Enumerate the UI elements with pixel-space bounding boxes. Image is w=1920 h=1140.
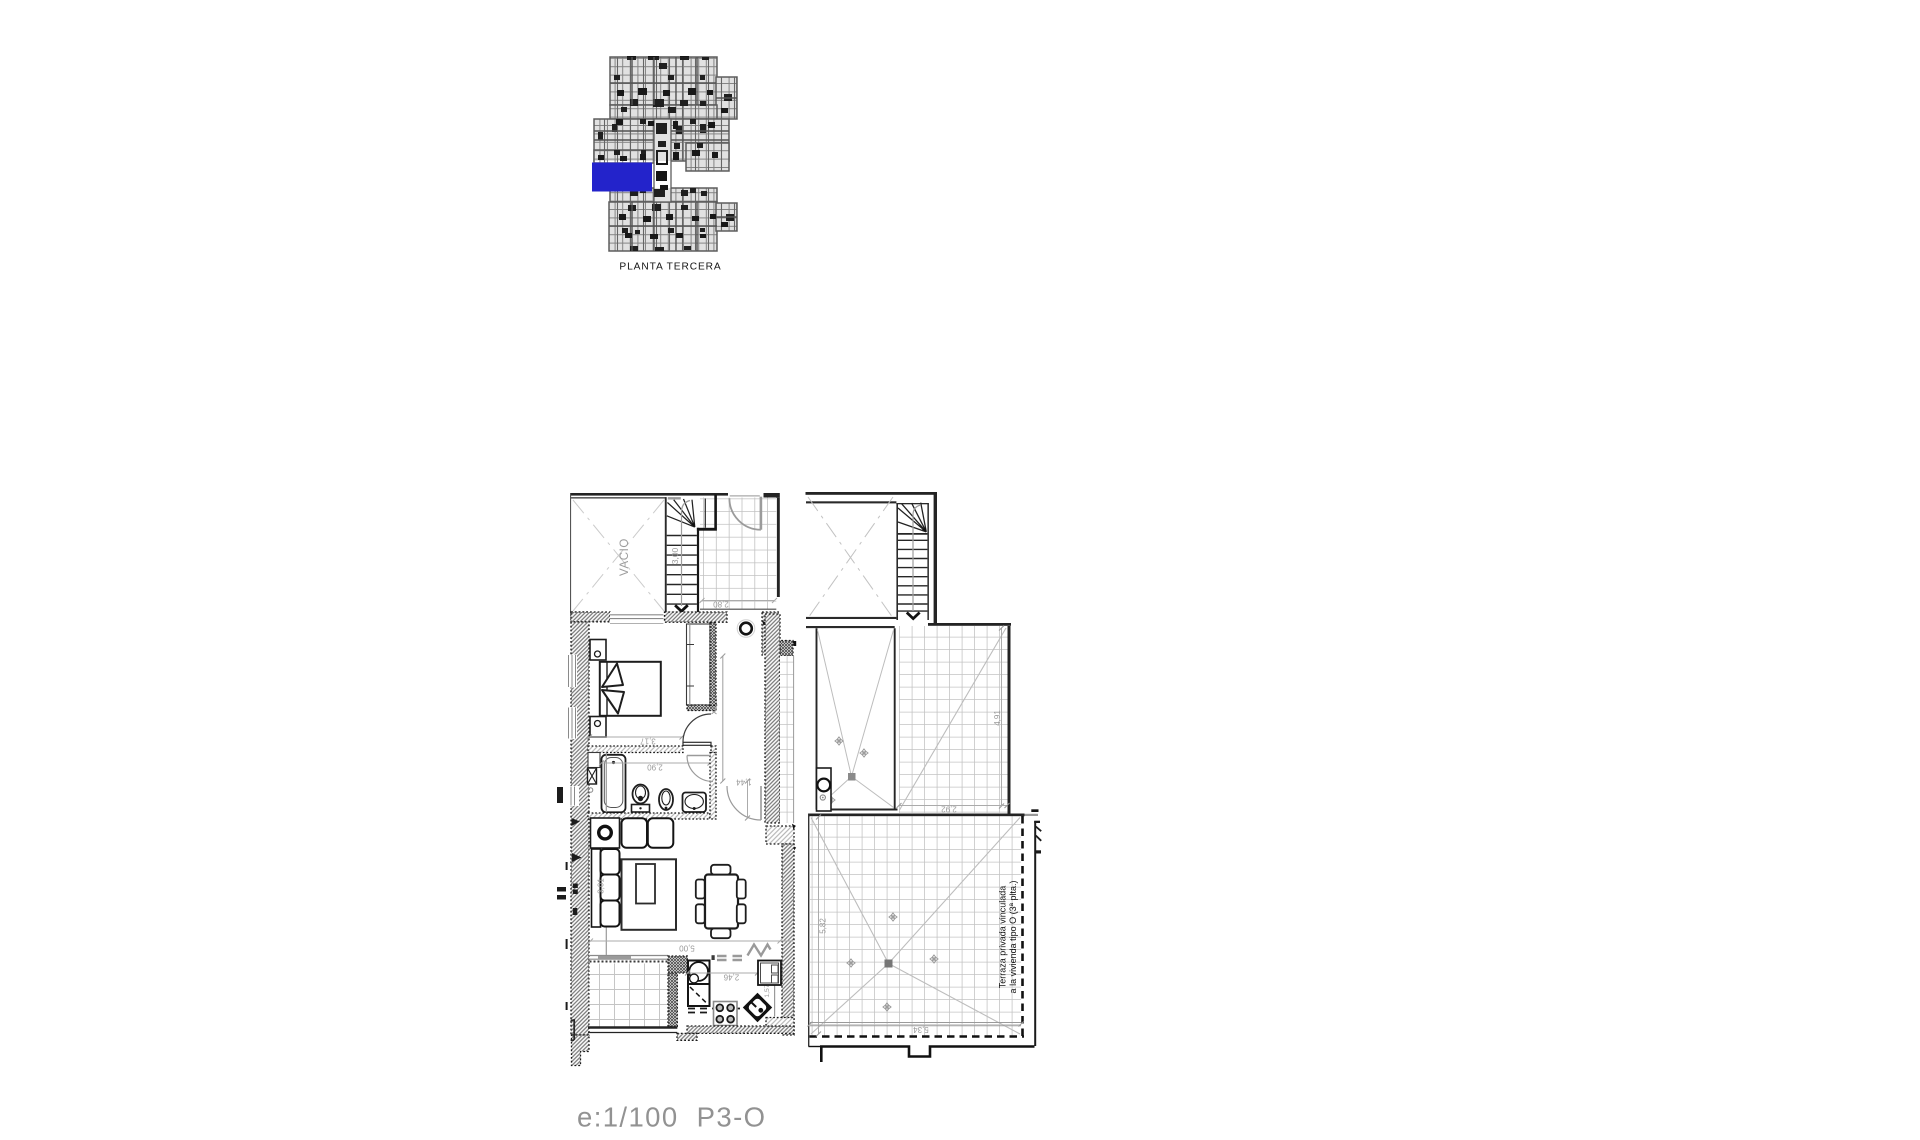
svg-text:a la vivienda tipo O (3ª plta.: a la vivienda tipo O (3ª plta.) <box>1008 881 1018 994</box>
svg-text:PLANTA TERCERA: PLANTA TERCERA <box>619 262 721 273</box>
svg-text:2,80: 2,80 <box>713 600 729 609</box>
svg-text:2,90: 2,90 <box>647 763 663 772</box>
svg-text:5,34: 5,34 <box>913 1025 929 1034</box>
svg-text:3,17: 3,17 <box>640 737 656 746</box>
svg-text:3,01: 3,01 <box>597 878 606 894</box>
svg-text:2,46: 2,46 <box>723 973 739 982</box>
svg-text:VACIO: VACIO <box>619 538 631 576</box>
svg-text:4,91: 4,91 <box>993 710 1002 726</box>
svg-text:e:1/100 P3-O: e:1/100 P3-O <box>577 1102 766 1133</box>
svg-text:2,92: 2,92 <box>941 805 957 814</box>
svg-text:5,00: 5,00 <box>679 944 695 953</box>
svg-text:1,57: 1,57 <box>764 984 771 997</box>
svg-text:Terraza privada vinculada: Terraza privada vinculada <box>998 886 1008 989</box>
svg-text:5,82: 5,82 <box>819 918 828 934</box>
svg-text:1,44: 1,44 <box>736 778 752 787</box>
svg-text:3,00: 3,00 <box>670 547 680 564</box>
